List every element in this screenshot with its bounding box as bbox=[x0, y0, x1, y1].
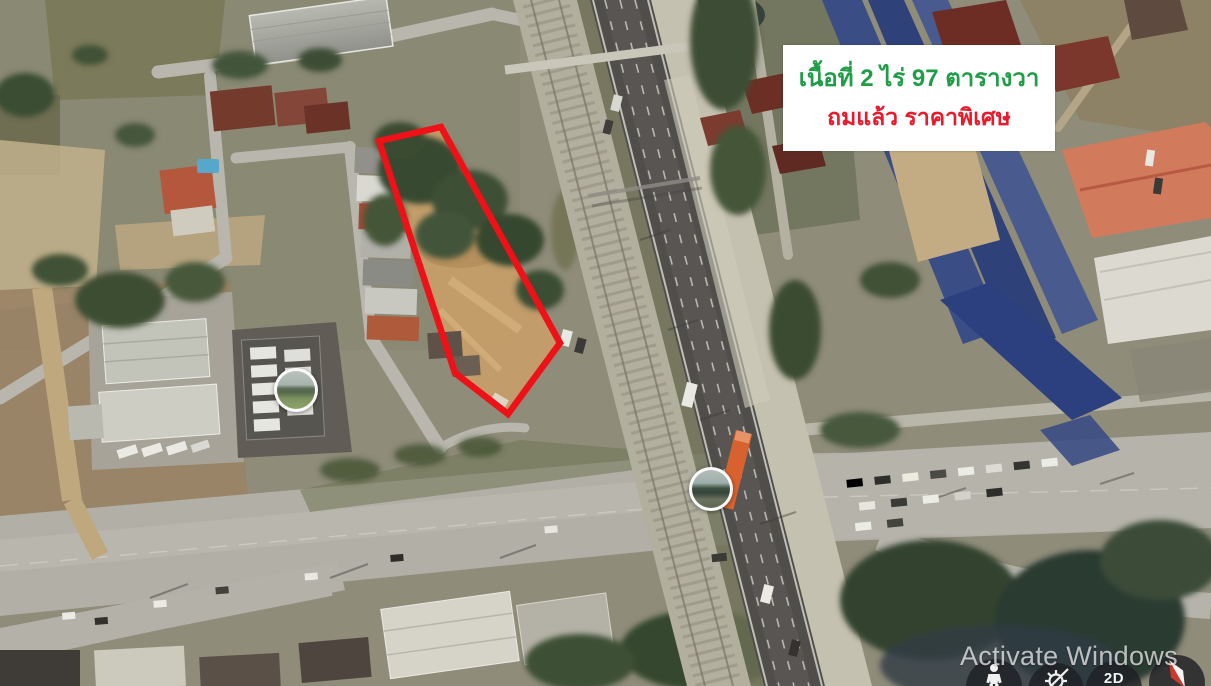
gear-icon bbox=[1041, 666, 1071, 686]
pegman-icon bbox=[983, 663, 1005, 686]
compass-icon bbox=[1160, 656, 1194, 686]
aerial-map-view[interactable]: เนื้อที่ 2 ไร่ 97 ตารางวา ถมแล้ว ราคาพิเ… bbox=[0, 0, 1211, 686]
land-area-text: เนื้อที่ 2 ไร่ 97 ตารางวา bbox=[799, 64, 1040, 94]
photo-marker[interactable] bbox=[274, 368, 318, 412]
land-status-text: ถมแล้ว ราคาพิเศษ bbox=[827, 104, 1011, 132]
photo-marker[interactable] bbox=[689, 467, 733, 511]
land-info-label: เนื้อที่ 2 ไร่ 97 ตารางวา ถมแล้ว ราคาพิเ… bbox=[783, 45, 1055, 151]
2d-view-label: 2D bbox=[1104, 670, 1124, 686]
